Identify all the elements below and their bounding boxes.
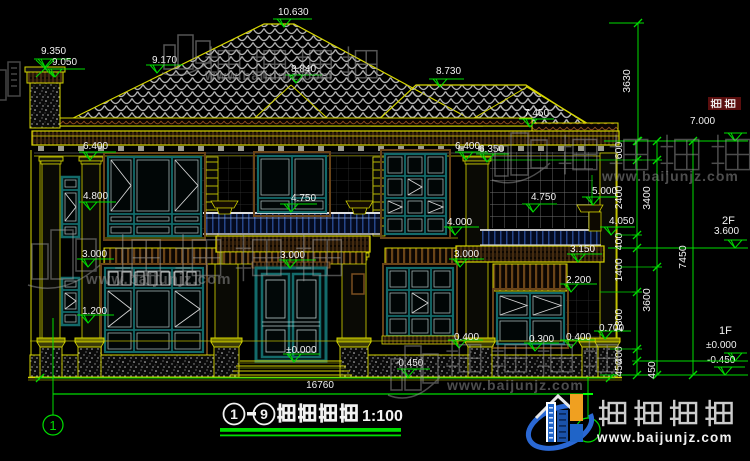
svg-text:1F: 1F xyxy=(719,325,732,337)
svg-text:±0.000: ±0.000 xyxy=(706,340,737,351)
svg-text:7450: 7450 xyxy=(677,245,689,269)
svg-text:8.730: 8.730 xyxy=(436,66,461,77)
svg-text:1: 1 xyxy=(49,418,56,433)
svg-text:4.050: 4.050 xyxy=(609,216,634,227)
svg-text:4.800: 4.800 xyxy=(83,191,108,202)
svg-text:1: 1 xyxy=(230,406,238,422)
svg-text:www.baijunjz.com: www.baijunjz.com xyxy=(204,68,333,83)
svg-text:7.000: 7.000 xyxy=(690,116,715,127)
svg-text:10.630: 10.630 xyxy=(278,7,309,18)
svg-text:www.baijunjz.com: www.baijunjz.com xyxy=(601,168,739,184)
svg-text:3.600: 3.600 xyxy=(714,226,739,237)
svg-text:9.350: 9.350 xyxy=(41,46,66,57)
svg-text:±0.000: ±0.000 xyxy=(286,345,317,356)
svg-text:1800: 1800 xyxy=(613,309,625,333)
svg-text:1400: 1400 xyxy=(613,258,625,282)
svg-text:1:100: 1:100 xyxy=(362,408,403,425)
svg-text:www.baijunjz.com: www.baijunjz.com xyxy=(85,271,231,288)
svg-text:3630: 3630 xyxy=(621,69,633,93)
svg-text:6.400: 6.400 xyxy=(83,141,108,152)
svg-text:3.000: 3.000 xyxy=(454,249,479,260)
svg-text:3400: 3400 xyxy=(641,186,653,210)
svg-text:www.baijunjz.com: www.baijunjz.com xyxy=(596,430,733,445)
svg-text:0.300: 0.300 xyxy=(529,334,554,345)
svg-text:4.750: 4.750 xyxy=(291,193,316,204)
svg-text:450: 450 xyxy=(613,359,625,377)
svg-text:7.450: 7.450 xyxy=(524,108,549,119)
svg-text:16760: 16760 xyxy=(306,380,334,391)
svg-text:1.200: 1.200 xyxy=(82,306,107,317)
svg-text:9: 9 xyxy=(260,406,268,422)
svg-text:0.400: 0.400 xyxy=(566,332,591,343)
svg-text:www.baijunjz.com: www.baijunjz.com xyxy=(446,377,584,393)
svg-text:0.400: 0.400 xyxy=(454,332,479,343)
svg-text:4.750: 4.750 xyxy=(531,192,556,203)
svg-text:2.200: 2.200 xyxy=(566,275,591,286)
svg-text:3.000: 3.000 xyxy=(280,250,305,261)
svg-text:3.150: 3.150 xyxy=(570,244,595,255)
svg-text:2400: 2400 xyxy=(613,186,625,210)
svg-text:6.400: 6.400 xyxy=(455,141,480,152)
svg-text:9.050: 9.050 xyxy=(52,57,77,68)
svg-text:3600: 3600 xyxy=(641,288,653,312)
svg-text:3.000: 3.000 xyxy=(82,249,107,260)
svg-text:2F: 2F xyxy=(722,215,735,227)
svg-text:450: 450 xyxy=(646,361,658,379)
svg-text:4.000: 4.000 xyxy=(447,217,472,228)
